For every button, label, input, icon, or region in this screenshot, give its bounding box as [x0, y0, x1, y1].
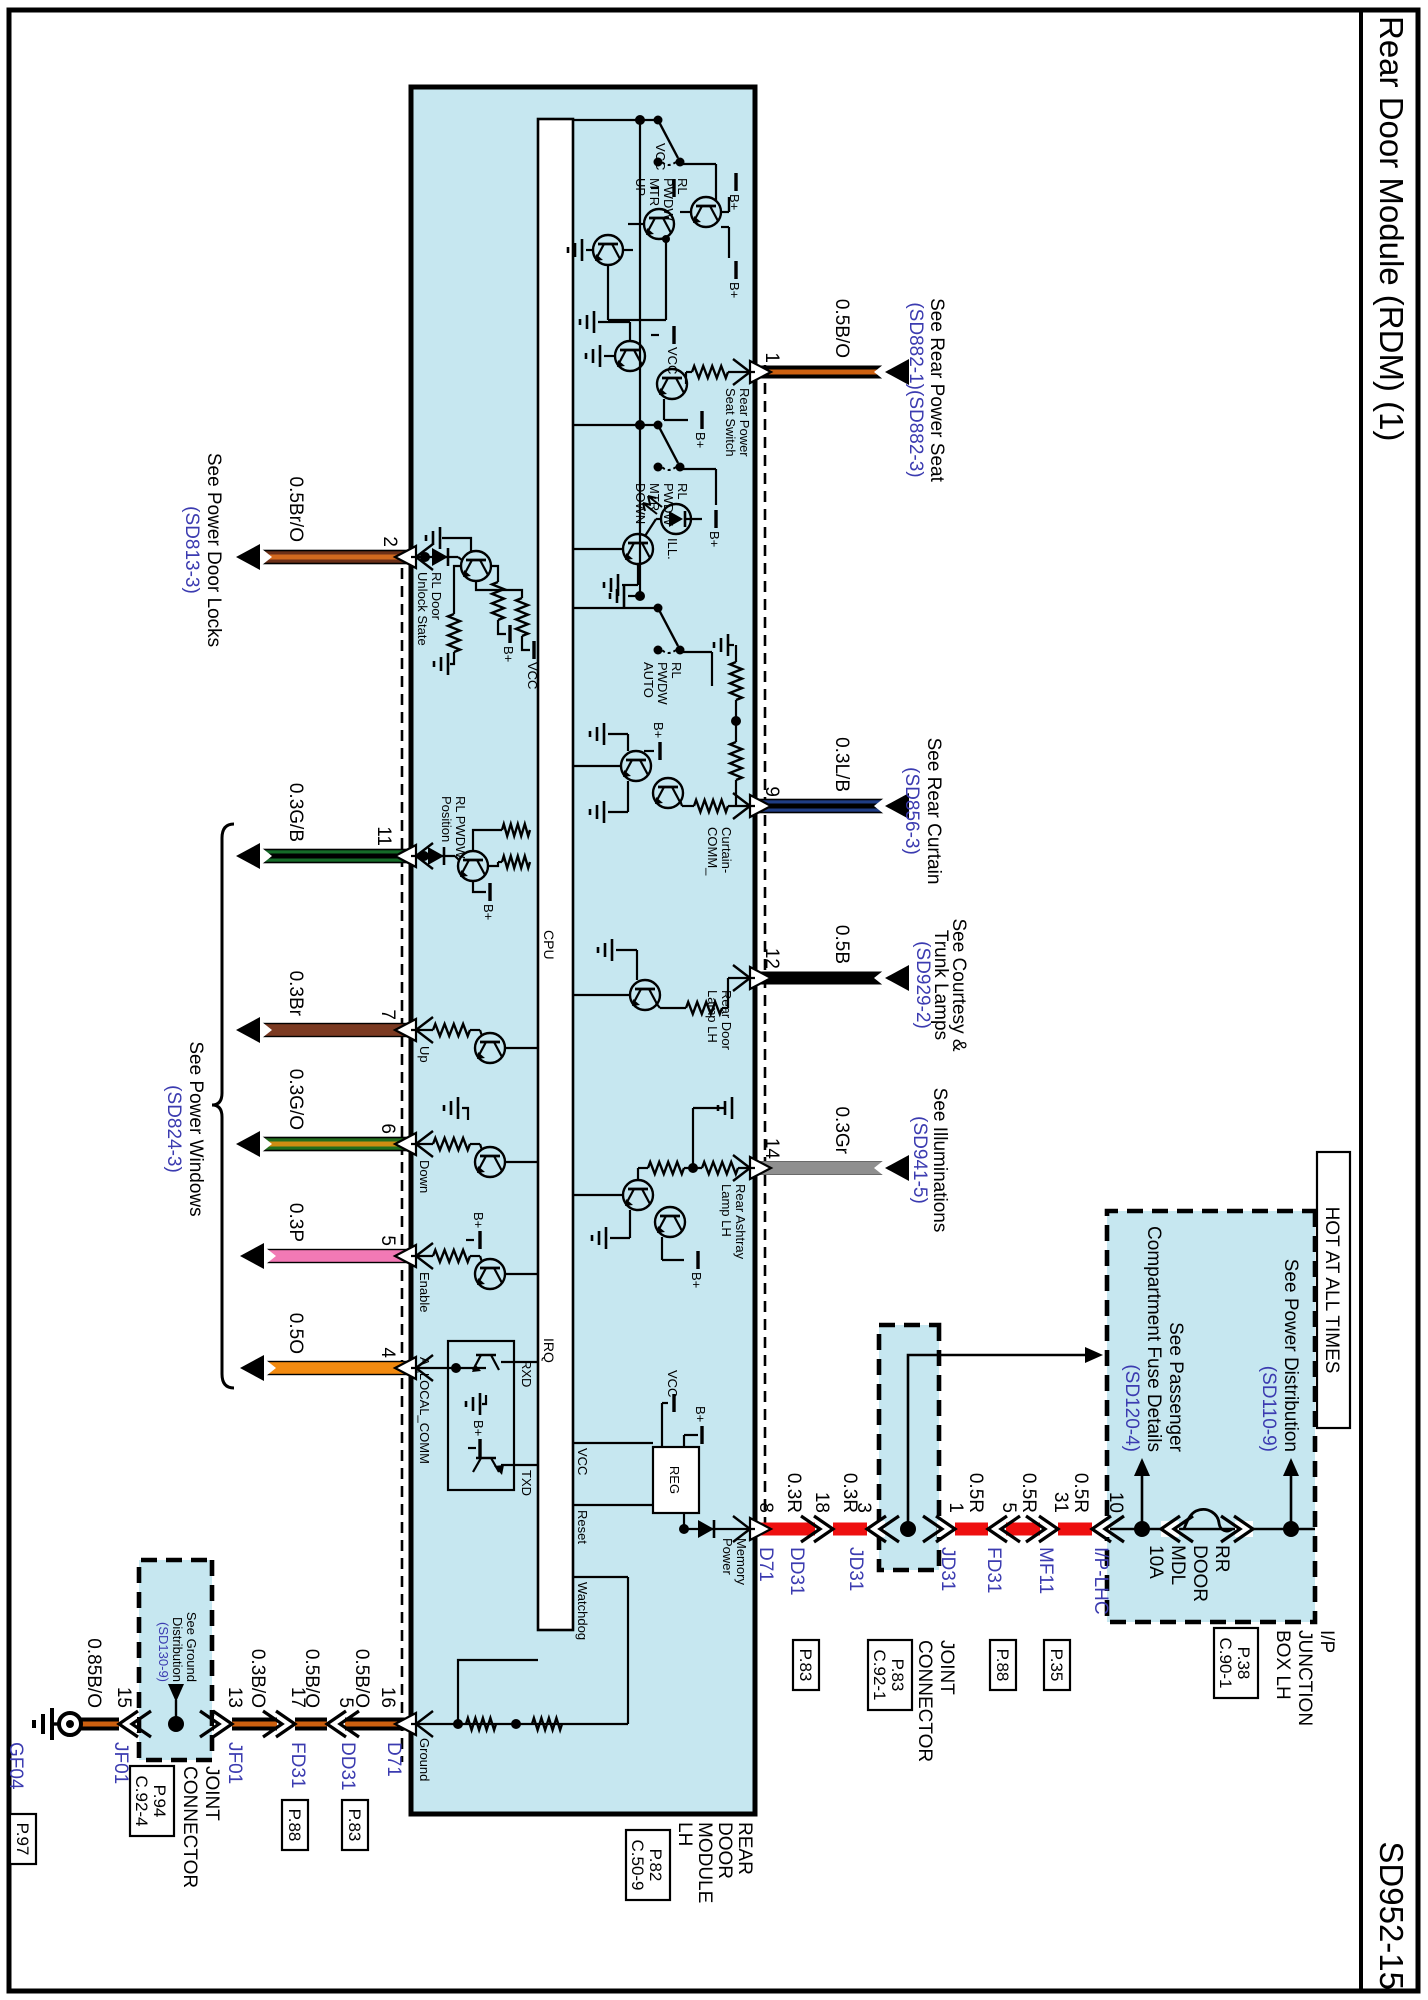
- svg-text:0.5B: 0.5B: [831, 925, 852, 964]
- svg-text:See Power Door Locks: See Power Door Locks: [203, 453, 224, 647]
- svg-text:RL: RL: [669, 662, 684, 679]
- svg-text:0.3P: 0.3P: [285, 1203, 306, 1242]
- svg-text:0.3G/B: 0.3G/B: [285, 783, 306, 842]
- svg-text:MTR: MTR: [647, 178, 662, 206]
- svg-text:B+: B+: [651, 722, 666, 738]
- svg-text:Unlock State: Unlock State: [415, 572, 430, 646]
- svg-text:(SD130-9): (SD130-9): [156, 1622, 171, 1682]
- svg-text:GF04: GF04: [5, 1742, 26, 1790]
- svg-text:P.83: P.83: [888, 1659, 907, 1692]
- svg-text:COMM_: COMM_: [705, 827, 720, 876]
- svg-text:RL PWDW: RL PWDW: [453, 796, 468, 859]
- svg-text:VCC: VCC: [653, 143, 668, 170]
- svg-text:RL: RL: [675, 178, 690, 195]
- svg-text:0.5B/O: 0.5B/O: [831, 299, 852, 358]
- svg-text:3: 3: [853, 1502, 874, 1513]
- svg-text:5: 5: [998, 1502, 1019, 1513]
- svg-text:B+: B+: [471, 1420, 486, 1436]
- svg-text:JD31: JD31: [937, 1547, 958, 1591]
- svg-text:B+: B+: [481, 904, 496, 920]
- svg-text:Up: Up: [417, 1046, 432, 1063]
- svg-text:D71: D71: [755, 1547, 776, 1582]
- svg-text:0.3R: 0.3R: [783, 1473, 804, 1513]
- svg-text:Curtain-: Curtain-: [719, 827, 734, 873]
- svg-text:BOX LH: BOX LH: [1272, 1630, 1293, 1700]
- svg-text:ILL.: ILL.: [665, 538, 680, 560]
- svg-text:RL Door: RL Door: [429, 572, 444, 621]
- svg-text:11: 11: [373, 826, 394, 846]
- svg-text:5: 5: [335, 1697, 356, 1708]
- svg-text:RXD: RXD: [519, 1360, 534, 1387]
- svg-text:P.38: P.38: [1234, 1647, 1253, 1680]
- svg-text:FD31: FD31: [983, 1547, 1004, 1593]
- svg-text:12: 12: [761, 948, 782, 969]
- svg-text:(SD882-1)(SD882-3): (SD882-1)(SD882-3): [905, 302, 926, 477]
- svg-text:18: 18: [811, 1492, 832, 1513]
- svg-text:See Illuminations: See Illuminations: [929, 1088, 950, 1233]
- svg-text:(SD929-2): (SD929-2): [912, 941, 933, 1029]
- svg-text:JD31: JD31: [845, 1547, 866, 1591]
- svg-text:(SD941-5): (SD941-5): [909, 1116, 930, 1204]
- svg-text:4: 4: [377, 1347, 398, 1358]
- svg-text:P.88: P.88: [993, 1649, 1012, 1682]
- svg-text:B+: B+: [727, 282, 742, 298]
- svg-text:0.3L/B: 0.3L/B: [831, 737, 852, 792]
- svg-text:DD31: DD31: [337, 1742, 358, 1791]
- svg-text:0.3Gr: 0.3Gr: [831, 1106, 852, 1154]
- svg-text:See Ground: See Ground: [184, 1612, 199, 1682]
- svg-text:5: 5: [377, 1235, 398, 1246]
- svg-text:Power: Power: [720, 1538, 735, 1576]
- svg-text:Down: Down: [417, 1160, 432, 1193]
- svg-text:15: 15: [113, 1687, 134, 1708]
- svg-text:CONNECTOR: CONNECTOR: [914, 1640, 935, 1762]
- svg-text:JF01: JF01: [224, 1742, 245, 1784]
- svg-text:I/P: I/P: [1316, 1630, 1337, 1653]
- svg-text:B+: B+: [707, 531, 722, 547]
- svg-text:I/P-LHC: I/P-LHC: [1090, 1547, 1111, 1615]
- svg-text:IRQ: IRQ: [541, 1338, 557, 1363]
- svg-text:JUNCTION: JUNCTION: [1294, 1630, 1315, 1726]
- svg-text:P.83: P.83: [796, 1649, 815, 1682]
- svg-text:See Passenger: See Passenger: [1165, 1322, 1186, 1453]
- svg-text:Enable: Enable: [417, 1272, 432, 1312]
- svg-text:REAR: REAR: [734, 1822, 755, 1875]
- svg-text:14: 14: [761, 1138, 782, 1160]
- svg-text:B+: B+: [693, 1406, 708, 1422]
- svg-text:C.90-1: C.90-1: [1216, 1637, 1235, 1688]
- svg-text:(SD813-3): (SD813-3): [181, 506, 202, 594]
- svg-text:17: 17: [287, 1687, 308, 1708]
- svg-text:Distribution: Distribution: [170, 1617, 185, 1682]
- svg-text:See Rear Curtain: See Rear Curtain: [923, 738, 944, 885]
- svg-text:Watchdog: Watchdog: [575, 1582, 590, 1640]
- svg-text:AUTO: AUTO: [641, 662, 656, 698]
- svg-text:B+: B+: [689, 1272, 704, 1288]
- svg-text:0.85B/O: 0.85B/O: [83, 1638, 104, 1708]
- svg-text:Position: Position: [439, 796, 454, 842]
- svg-text:SD952-15: SD952-15: [1373, 1841, 1410, 1990]
- svg-text:10A: 10A: [1145, 1545, 1166, 1579]
- svg-text:MF11: MF11: [1035, 1547, 1056, 1594]
- svg-text:P.94: P.94: [150, 1785, 169, 1818]
- svg-text:Reset: Reset: [575, 1510, 590, 1544]
- svg-text:16: 16: [377, 1687, 398, 1708]
- svg-text:B+: B+: [693, 432, 708, 448]
- svg-text:CONNECTOR: CONNECTOR: [179, 1766, 200, 1888]
- svg-text:P.83: P.83: [345, 1809, 364, 1842]
- svg-text:JOINT: JOINT: [201, 1766, 222, 1821]
- svg-text:P.97: P.97: [13, 1823, 32, 1856]
- svg-text:0.3B/O: 0.3B/O: [247, 1649, 268, 1708]
- svg-text:Rear Power: Rear Power: [737, 388, 752, 457]
- svg-text:10: 10: [1105, 1492, 1126, 1513]
- svg-text:(SD120-4): (SD120-4): [1121, 1364, 1142, 1452]
- svg-text:RR: RR: [1211, 1545, 1232, 1572]
- svg-text:8: 8: [755, 1502, 776, 1513]
- svg-text:Lamp LH: Lamp LH: [705, 990, 720, 1043]
- svg-text:(SD110-9): (SD110-9): [1258, 1366, 1279, 1452]
- svg-text:JF01: JF01: [110, 1742, 131, 1784]
- svg-text:0.5R: 0.5R: [1018, 1473, 1039, 1513]
- svg-text:See Courtesy &: See Courtesy &: [948, 918, 969, 1051]
- svg-text:C.92-1: C.92-1: [870, 1649, 889, 1700]
- svg-text:(SD824-3): (SD824-3): [163, 1085, 184, 1173]
- svg-text:0.5R: 0.5R: [1070, 1473, 1091, 1513]
- svg-text:REG: REG: [667, 1466, 682, 1494]
- svg-text:13: 13: [224, 1687, 245, 1708]
- svg-text:RL: RL: [675, 483, 690, 500]
- svg-text:1: 1: [945, 1502, 966, 1513]
- svg-text:MDL: MDL: [1167, 1545, 1188, 1585]
- svg-text:CPU: CPU: [541, 930, 557, 960]
- svg-text:A_LOCAL_COMM: A_LOCAL_COMM: [417, 1357, 432, 1464]
- svg-text:DOOR: DOOR: [714, 1822, 735, 1879]
- svg-text:0.5Br/O: 0.5Br/O: [285, 477, 306, 542]
- svg-text:P.82: P.82: [646, 1849, 665, 1882]
- svg-text:D71: D71: [383, 1742, 404, 1777]
- svg-text:Compartment Fuse Details: Compartment Fuse Details: [1143, 1226, 1164, 1452]
- svg-text:7: 7: [377, 1009, 398, 1020]
- svg-text:(SD856-3): (SD856-3): [901, 767, 922, 855]
- svg-text:VCC: VCC: [525, 662, 540, 689]
- svg-text:See Rear Power Seat: See Rear Power Seat: [926, 298, 947, 482]
- svg-text:C.92-4: C.92-4: [132, 1775, 151, 1826]
- svg-text:Ground: Ground: [417, 1738, 432, 1781]
- svg-text:1: 1: [761, 352, 782, 363]
- svg-text:See Power Windows: See Power Windows: [185, 1041, 206, 1216]
- svg-text:DOOR: DOOR: [1189, 1545, 1210, 1602]
- svg-text:6: 6: [377, 1123, 398, 1134]
- svg-text:LH: LH: [674, 1822, 695, 1846]
- svg-text:HOT AT ALL TIMES: HOT AT ALL TIMES: [1321, 1207, 1342, 1374]
- svg-text:Rear Ashtray: Rear Ashtray: [733, 1184, 748, 1260]
- svg-text:C.50-9: C.50-9: [628, 1839, 647, 1890]
- svg-text:0.5O: 0.5O: [285, 1313, 306, 1354]
- svg-text:B+: B+: [501, 646, 516, 662]
- svg-text:JOINT: JOINT: [936, 1640, 957, 1695]
- svg-text:P.35: P.35: [1047, 1649, 1066, 1682]
- svg-text:0.5R: 0.5R: [965, 1473, 986, 1513]
- svg-text:TXD: TXD: [519, 1470, 534, 1496]
- svg-text:Rear Door Module (RDM) (1): Rear Door Module (RDM) (1): [1373, 16, 1410, 441]
- svg-text:VCC: VCC: [665, 1370, 680, 1397]
- svg-text:PWDW: PWDW: [655, 662, 670, 705]
- svg-text:Trunk Lamps: Trunk Lamps: [930, 930, 951, 1040]
- svg-text:VCC: VCC: [575, 1448, 590, 1475]
- svg-text:B+: B+: [471, 1212, 486, 1228]
- svg-text:P.88: P.88: [285, 1809, 304, 1842]
- svg-text:B+: B+: [727, 194, 742, 210]
- svg-text:Seat Switch: Seat Switch: [723, 388, 738, 457]
- svg-text:Rear Door: Rear Door: [719, 990, 734, 1051]
- svg-text:DD31: DD31: [786, 1547, 807, 1596]
- svg-text:Lamp LH: Lamp LH: [719, 1184, 734, 1237]
- svg-text:See Power Distribution: See Power Distribution: [1280, 1259, 1301, 1452]
- svg-text:0.3Br: 0.3Br: [285, 971, 306, 1017]
- svg-text:MODULE: MODULE: [694, 1822, 715, 1903]
- svg-text:0.3G/O: 0.3G/O: [285, 1069, 306, 1130]
- svg-text:9: 9: [761, 786, 782, 797]
- svg-text:Memory: Memory: [734, 1538, 749, 1585]
- svg-text:2: 2: [379, 536, 400, 547]
- svg-text:FD31: FD31: [287, 1742, 308, 1788]
- svg-text:31: 31: [1050, 1492, 1071, 1513]
